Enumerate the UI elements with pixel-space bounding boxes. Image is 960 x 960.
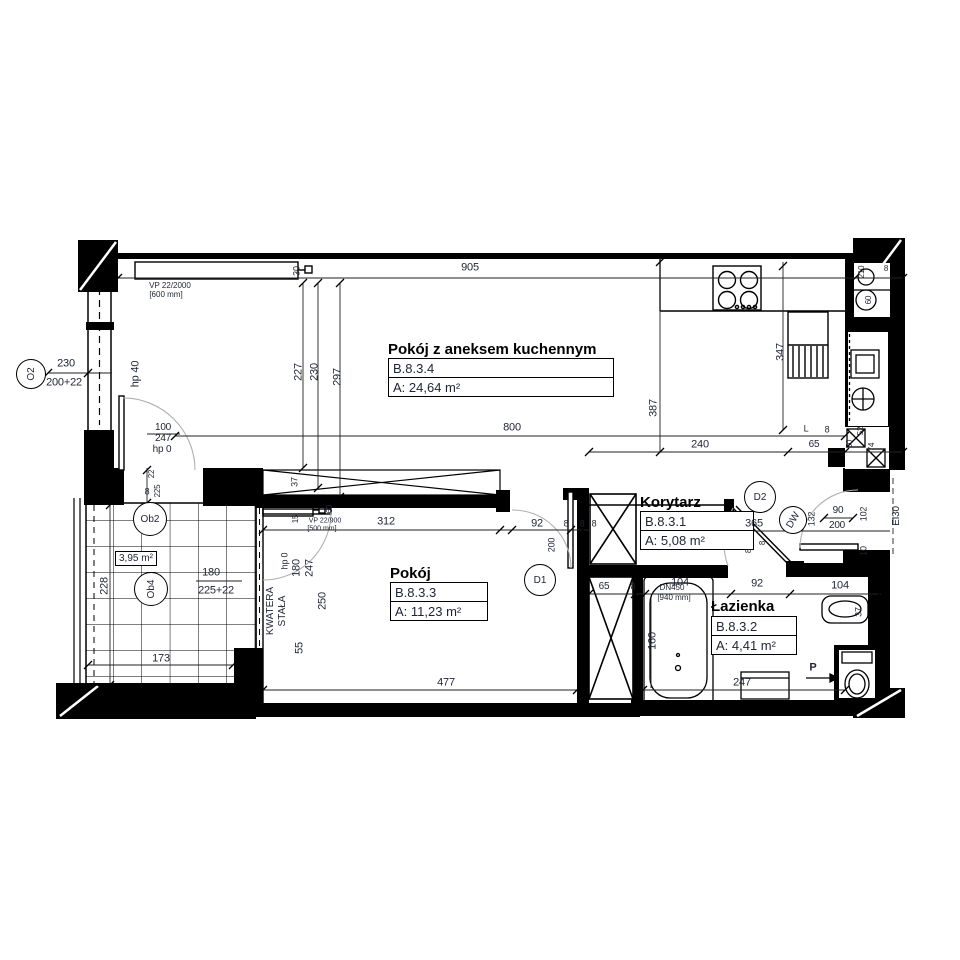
dimension-label: hp 0 — [153, 445, 172, 455]
dimension-label: 387 — [649, 399, 660, 417]
dimension-label: 65 — [809, 440, 820, 450]
dimension-label: 8 — [825, 426, 830, 435]
dimension-label: 60 — [326, 505, 334, 514]
dimension-label: 210 — [858, 266, 866, 279]
dimension-label: 312 — [377, 517, 395, 528]
dimension-label: 200 — [548, 538, 557, 552]
dimension-label: 10 — [860, 546, 869, 556]
dimension-label: 132 — [808, 512, 817, 526]
dimension-label: 200+22 — [46, 378, 82, 389]
door-dw-leaf — [800, 544, 858, 550]
dimension-label: 228 — [100, 577, 111, 595]
dimension-label: 104 — [831, 581, 849, 592]
dimension-label: 65 — [599, 582, 610, 592]
dimension-label: 240 — [691, 440, 709, 451]
annotation-label: KWATERA — [266, 587, 276, 635]
dimension-label: 230 — [310, 363, 321, 381]
dimension-label: hp 0 — [281, 553, 290, 570]
annotation-label: STAŁA — [278, 596, 288, 627]
dimension-label: 52 — [857, 427, 865, 436]
marker-o2: O2 — [16, 359, 46, 389]
room-label-pokoj: B.8.3.3 A: 11,23 m² — [390, 582, 488, 621]
annotation-label: [600 mm] — [149, 291, 182, 299]
marker-d2: D2 — [744, 481, 776, 513]
dimension-label: 8 — [145, 488, 150, 497]
dimension-label: 8 — [759, 541, 767, 545]
kitchen-annex — [660, 259, 845, 378]
balcony-area-label: 3,95 m² — [115, 551, 157, 566]
dimension-label: 92 — [751, 579, 763, 590]
annotation-label: VP 22/2000 — [149, 282, 191, 290]
annotation-label: VP 22/900 — [309, 518, 342, 525]
dimension-label: hp 40 — [131, 361, 142, 388]
room-name-living: Pokój z aneksem kuchennym — [388, 341, 596, 358]
room-area: A: 4,41 m² — [712, 635, 796, 654]
annotation-label: P — [809, 663, 816, 674]
dimension-label: 180 — [292, 559, 303, 577]
dimension-label: EI30 — [892, 506, 902, 526]
dimension-label: 8 — [580, 520, 585, 529]
annotation-label: [940 mm] — [657, 594, 690, 602]
dimension-label: 247 — [155, 434, 171, 444]
dimension-label: 15 — [292, 515, 300, 524]
dimension-label: 22 — [148, 470, 156, 479]
dimension-label: 50 — [846, 440, 854, 449]
radiator-living — [135, 262, 298, 279]
room-label-lazienka: B.8.3.2 A: 4,41 m² — [711, 616, 797, 655]
dimension-label: 800 — [503, 423, 521, 434]
dimension-label: L — [804, 425, 809, 434]
dimension-label: 8 — [592, 520, 597, 529]
dimension-label: 227 — [294, 363, 305, 381]
dimension-label: 102 — [860, 507, 869, 521]
dimension-label: 247 — [733, 678, 751, 689]
dimension-label: 905 — [461, 263, 479, 274]
room-id: B.8.3.2 — [712, 617, 796, 635]
dimension-label: 37 — [291, 477, 300, 487]
dimension-label: 250 — [318, 592, 329, 610]
annotation-label: [500 mm] — [307, 526, 336, 533]
room-id: B.8.3.4 — [389, 359, 613, 377]
dimension-label: 347 — [776, 343, 787, 361]
dimension-label: 8 — [884, 265, 888, 273]
room-area: A: 5,08 m² — [641, 530, 753, 549]
dimension-label: 8 — [564, 520, 569, 529]
room-label-korytarz: B.8.3.1 A: 5,08 m² — [640, 511, 754, 550]
room-area: A: 11,23 m² — [391, 601, 487, 620]
dimension-label: 100 — [155, 423, 171, 433]
annotation-label: DN450 — [660, 584, 685, 592]
dimension-label: 225+22 — [198, 586, 234, 597]
room-label-living: B.8.3.4 A: 24,64 m² — [388, 358, 614, 397]
dimension-label: 200 — [829, 521, 845, 531]
marker-ob2: Ob2 — [133, 502, 167, 536]
dimension-label: 365 — [745, 519, 763, 530]
dimension-label: 37 — [855, 607, 864, 617]
dimension-label: 60 — [865, 296, 873, 305]
dimension-label: 55 — [295, 642, 306, 654]
room-name-pokoj: Pokój — [390, 565, 431, 582]
room-id: B.8.3.1 — [641, 512, 753, 530]
room-id: B.8.3.3 — [391, 583, 487, 601]
dimension-label: 92 — [531, 519, 543, 530]
room-area: A: 24,64 m² — [389, 377, 613, 396]
dimension-label: 173 — [152, 654, 170, 665]
dimension-label: 30 — [293, 266, 302, 276]
marker-ob4: Ob4 — [134, 572, 168, 606]
room-name-lazienka: Łazienka — [711, 598, 774, 615]
dimension-label: 90 — [833, 506, 844, 516]
balcony-door-leaf — [119, 396, 124, 470]
room-name-korytarz: Korytarz — [640, 494, 701, 511]
dimension-label: 225 — [154, 485, 162, 498]
dimension-label: 8 — [631, 583, 636, 592]
marker-d1: D1 — [524, 564, 556, 596]
dimension-label: 180 — [202, 568, 220, 579]
dimension-label: 477 — [437, 678, 455, 689]
dimension-label: 297 — [333, 368, 344, 386]
dimension-label: 8 — [745, 549, 753, 553]
floor-plan-page: Pokój z aneksem kuchennym B.8.3.4 A: 24,… — [0, 0, 960, 960]
floor-plan-drawing — [0, 0, 960, 960]
dimension-label: 160 — [648, 632, 659, 650]
dimension-label: 74 — [868, 443, 876, 452]
dimension-label: 230 — [57, 359, 75, 370]
dimension-label: 247 — [305, 559, 316, 577]
window-o2 — [88, 283, 111, 430]
